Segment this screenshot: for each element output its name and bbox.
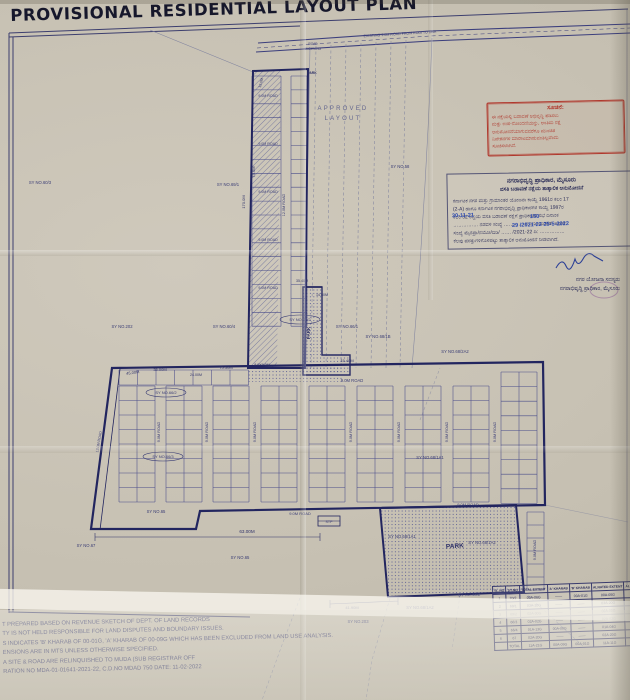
map-label: 9.0M ROAD bbox=[445, 422, 449, 443]
scanned-layout-plan-sheet: EXISTING 9.0M ROAD FROM KODI TO DBAROADW… bbox=[0, 0, 630, 700]
map-label: 170.0M bbox=[241, 195, 246, 208]
handwritten-date-1: 30-11-21 bbox=[452, 213, 474, 220]
map-label: SY NO.69/1 bbox=[217, 182, 240, 187]
table-cell bbox=[625, 606, 630, 614]
map-label: APPROVED bbox=[318, 106, 369, 112]
sign-title: ನಗರ ಯೋಜನಾ ಸದಸ್ಯರು bbox=[470, 276, 620, 285]
text-line: ಸೂಚಿಸಲಾಗಿದೆ. bbox=[492, 141, 620, 151]
map-label: SY NO.68/1A1 bbox=[388, 534, 416, 539]
map-label: 75.50M bbox=[219, 365, 232, 370]
map-label: SY NO.58 bbox=[391, 164, 410, 169]
park-area bbox=[380, 505, 524, 597]
map-label: WIDENING bbox=[305, 47, 322, 51]
map-label: 8.0X9.0M bbox=[254, 363, 269, 367]
map-label: 9.0M ROAD bbox=[258, 190, 278, 194]
map-label: 63.00M bbox=[239, 529, 254, 534]
signatory-title: ನಗರ ಯೋಜನಾ ಸದಸ್ಯರು ನಗರಾಭಿವೃದ್ಧಿ ಪ್ರಾಧಿಕಾರ… bbox=[470, 276, 620, 293]
table-cell bbox=[626, 638, 630, 646]
table-cell bbox=[624, 590, 630, 598]
table-cell bbox=[494, 642, 507, 650]
map-label: 9.0M ROAD bbox=[253, 422, 257, 443]
map-label: SY NO.66/3 bbox=[152, 454, 174, 459]
map-label: 9.0M ROAD bbox=[258, 94, 278, 98]
map-label: EXISTING 9.0M ROAD FROM KODI TO DBA bbox=[364, 30, 437, 38]
map-label: ROAD bbox=[308, 42, 318, 46]
stamp-text: ಈ ನಕ್ಷೆಯಲ್ಲಿ ಬಡಾವಣೆ ಅಭಿವೃದ್ಧಿ ಪಡಿಸಲುಮತ್ತ… bbox=[492, 112, 621, 152]
map-label: PARK bbox=[306, 326, 311, 339]
map-label: SY NO.68/1A2 bbox=[406, 605, 434, 610]
area-statement-table: SL.NOSY.NOTOTAL EXTENT'A' KHARAB'B' KHAR… bbox=[492, 581, 630, 651]
approval-endorsement-block: ನಗರಾಭಿವೃದ್ಧಿ ಪ್ರಾಧಿಕಾರ, ಮೈಸೂರು ವಸತಿ ಬಡಾವ… bbox=[446, 170, 630, 249]
table-side-survey-label: SY NO.68/2 bbox=[458, 592, 480, 598]
map-label: 9.0M ROAD bbox=[205, 422, 209, 443]
map-label: PARK bbox=[446, 542, 465, 550]
map-label: 12.0M ROAD bbox=[282, 193, 286, 216]
map-label: SY NO.60/4 bbox=[213, 324, 236, 329]
map-label: 24.00M bbox=[190, 373, 202, 377]
map-label: SY NO.67 bbox=[77, 543, 96, 548]
map-label: SY NO.68/2A2 bbox=[441, 349, 469, 354]
map-label: 9.0M ROAD bbox=[258, 238, 278, 242]
map-label: SY NO.68/1A2 bbox=[468, 540, 496, 545]
signature bbox=[556, 254, 603, 270]
dimension-lines bbox=[95, 533, 398, 608]
map-label: 9.0M ROAD bbox=[289, 511, 311, 516]
map-label: SY NO.202 bbox=[111, 324, 133, 329]
map-label: SY NO.68/1A1 bbox=[416, 455, 444, 460]
text-line: ಕೆಲವು ಷರತ್ತುಗಳಿಗೊಳಪಟ್ಟು ತಾತ್ಕಾಲಿಕ ಅನುಮೋದ… bbox=[453, 235, 630, 246]
map-label: 15.40M bbox=[340, 358, 353, 363]
map-label: 9.0M ROAD bbox=[349, 422, 353, 443]
map-label: 9.0M ROAD bbox=[457, 502, 479, 507]
map-label: SY NO.66/2 bbox=[289, 317, 311, 322]
map-label: 9.0M ROAD bbox=[533, 540, 537, 561]
map-label: PARK bbox=[307, 71, 317, 75]
map-label: 9.0M ROAD bbox=[397, 422, 401, 443]
map-label: STP bbox=[326, 520, 334, 524]
approval-body-text: ಕರ್ನಾಟಕ ನಗರ ಮತ್ತು ಗ್ರಾಮಾಂತರ ಯೋಜನಾ ಕಾಯ್ದೆ… bbox=[453, 194, 630, 246]
table-cell bbox=[624, 598, 630, 606]
map-label: SY NO.66/1 bbox=[336, 324, 359, 329]
map-label: 9.0M ROAD bbox=[258, 286, 278, 290]
map-label: LAYOUT bbox=[325, 116, 362, 122]
table-cell bbox=[625, 622, 630, 630]
map-label: SY NO.66/2 bbox=[155, 390, 177, 395]
map-label: 35.00M bbox=[153, 367, 166, 372]
map-label: 75.0M bbox=[251, 166, 256, 177]
table-header-cell: ALN bbox=[624, 582, 630, 590]
map-label: SY NO.65 bbox=[147, 509, 166, 514]
map-label: 35.40M bbox=[296, 279, 308, 283]
table-cell: 00A-09G bbox=[549, 640, 571, 649]
table-cell: 11A-11G bbox=[593, 638, 626, 647]
map-label: 9.0M ROAD bbox=[258, 142, 278, 146]
map-label: 41.90M bbox=[345, 605, 358, 610]
table-cell bbox=[625, 614, 630, 622]
red-note-stamp: ಸೂಚನೆ: ಈ ನಕ್ಷೆಯಲ್ಲಿ ಬಡಾವಣೆ ಅಭಿವೃದ್ಧಿ ಪಡಿ… bbox=[486, 99, 625, 156]
map-label: SY NO.68/1B bbox=[365, 334, 390, 339]
table-cell: 00A-01G bbox=[571, 639, 593, 648]
map-label: SY NO.65 bbox=[231, 555, 250, 560]
table-cell bbox=[625, 630, 630, 638]
map-label: 14.50M bbox=[316, 293, 328, 297]
table-cell: TOTAL bbox=[508, 642, 522, 650]
map-label: 9.0M ROAD bbox=[493, 422, 497, 443]
map-label: SY NO.60/3 bbox=[29, 180, 52, 185]
footnotes: T PREPARED BASED ON REVENUE SKETCH OF DE… bbox=[2, 613, 334, 677]
handwritten-resolution-no: 150 bbox=[530, 214, 540, 220]
table-cell: 11A-21G bbox=[522, 641, 550, 650]
map-label: 9.0M ROAD bbox=[341, 378, 364, 383]
map-label: SY NO.203 bbox=[347, 619, 369, 624]
map-label: 9.0M ROAD bbox=[157, 422, 161, 443]
sign-org: ನಗರಾಭಿವೃದ್ಧಿ ಪ್ರಾಧಿಕಾರ, ಮೈಸೂರು bbox=[470, 285, 620, 294]
